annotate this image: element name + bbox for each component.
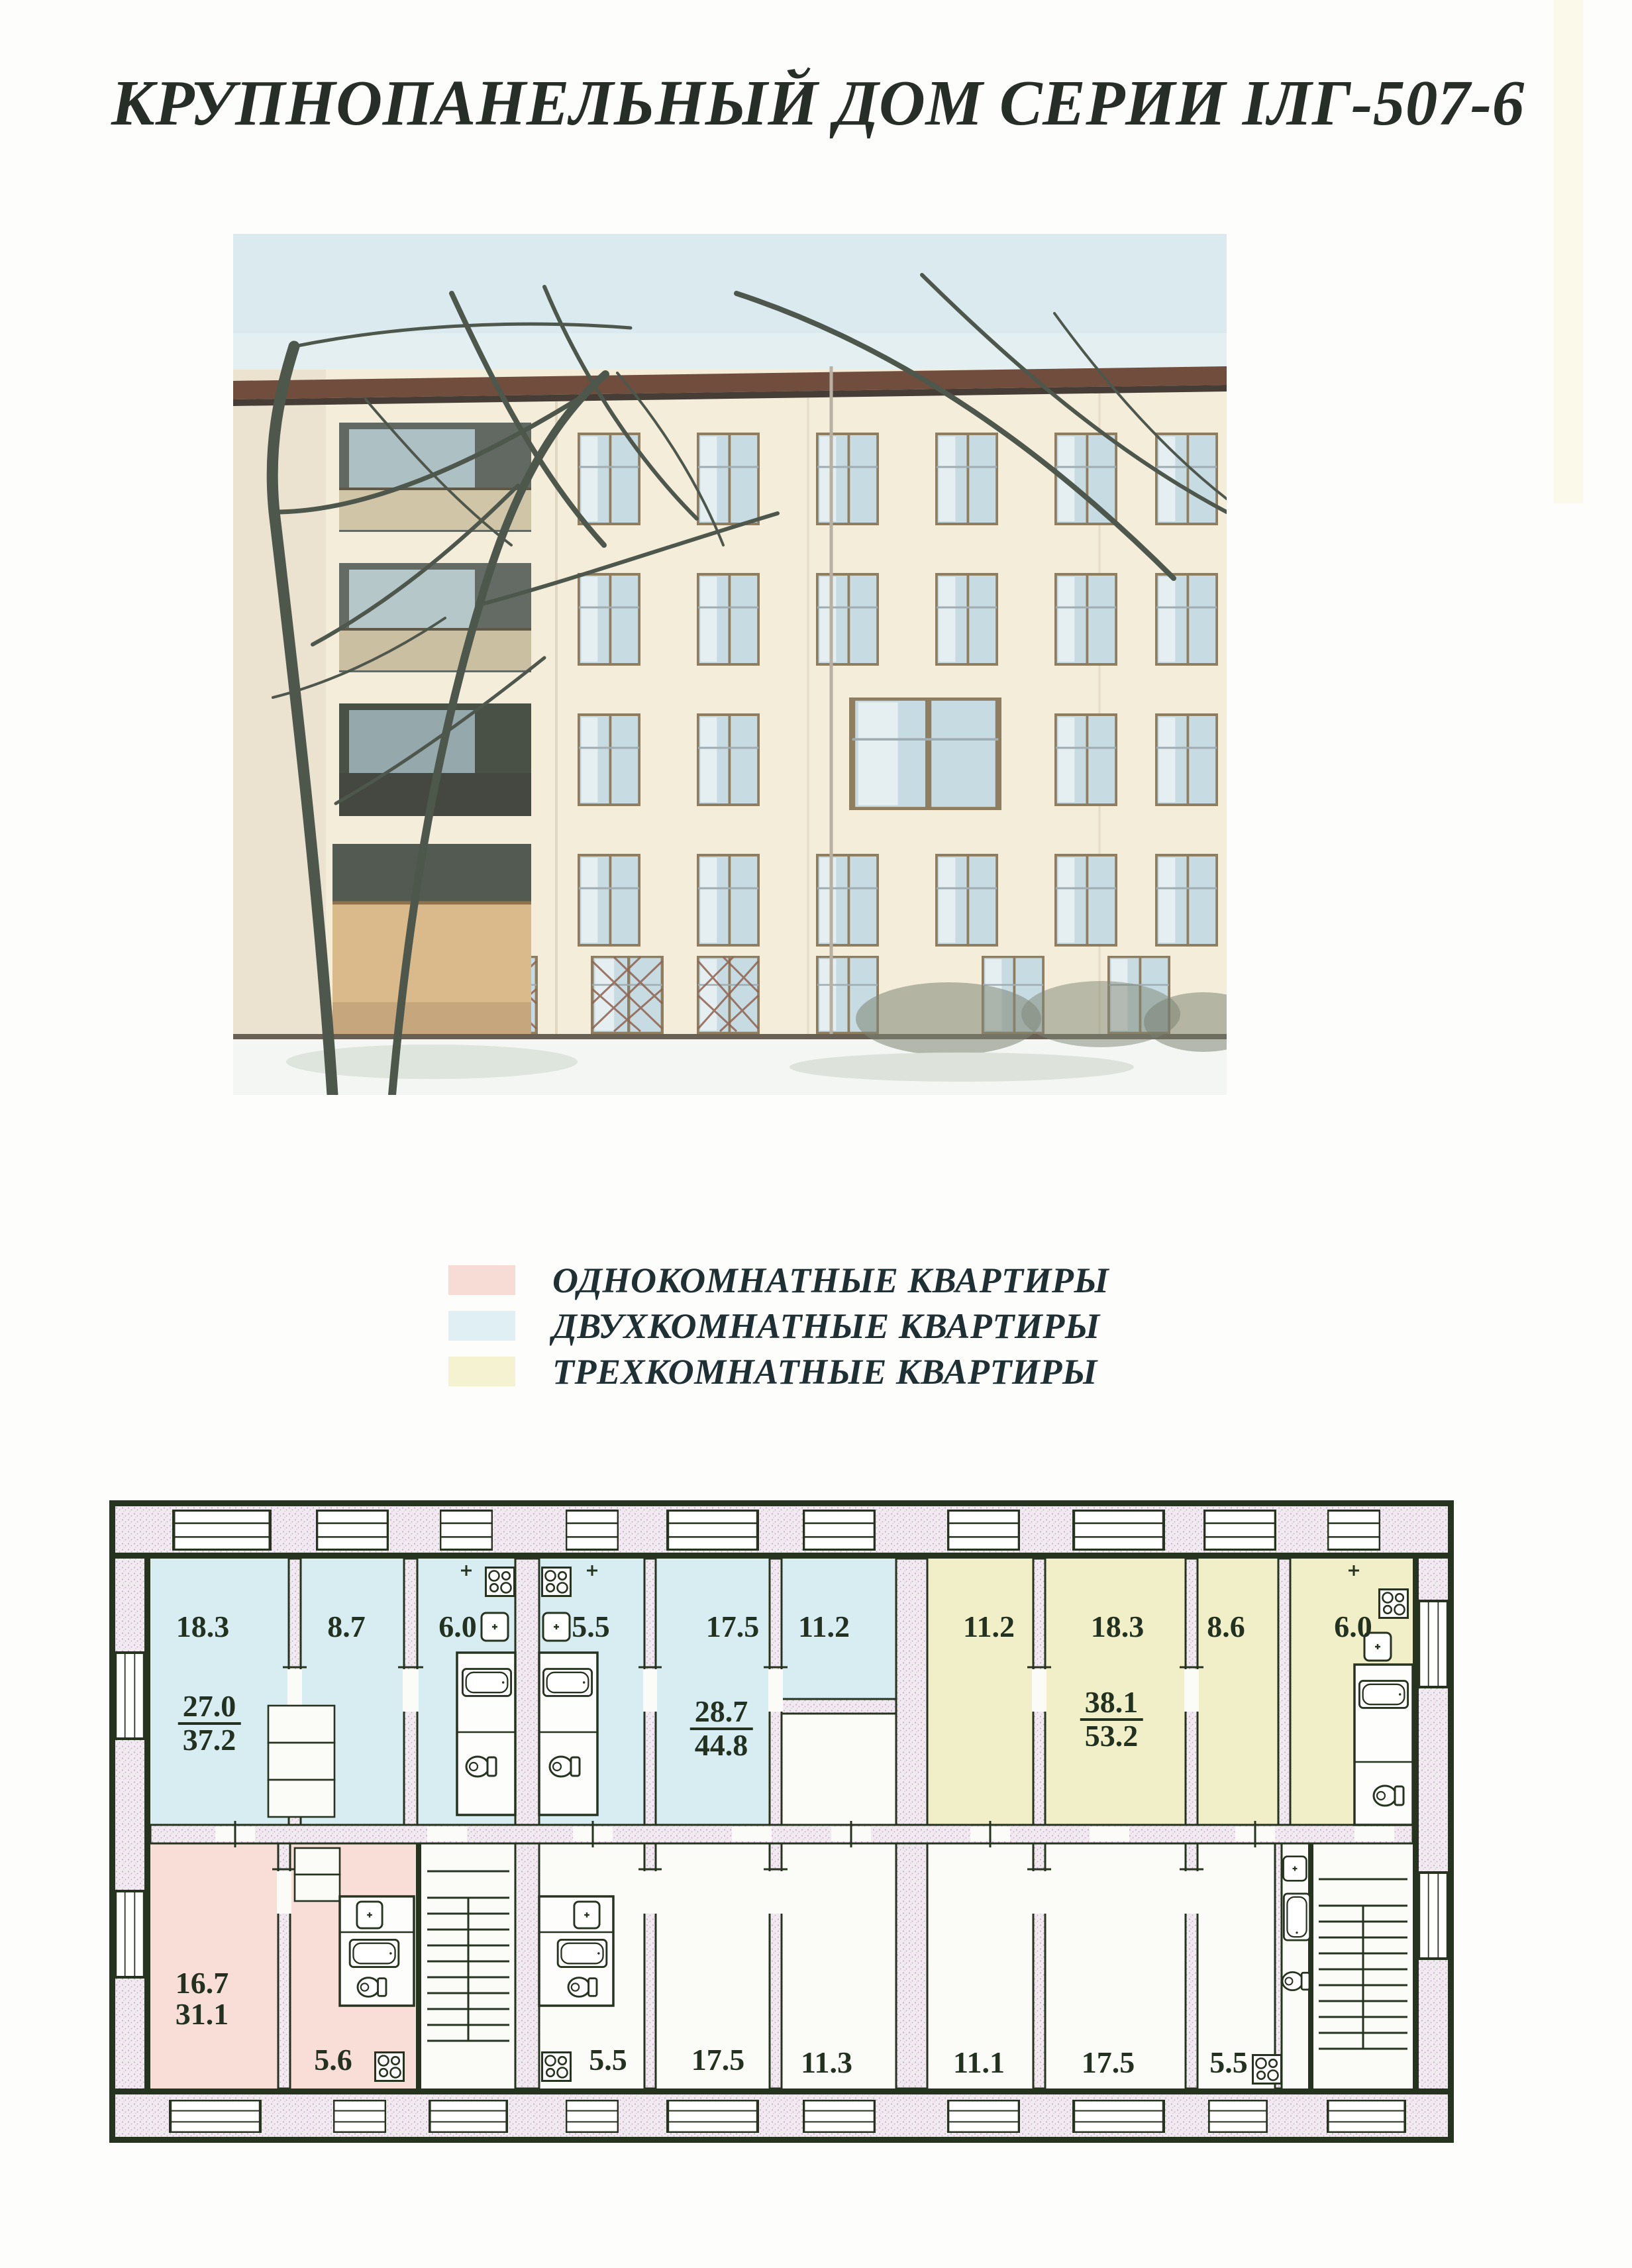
room-area-label: 17.5 — [706, 1612, 760, 1643]
living-area: 38.1 — [1080, 1687, 1143, 1721]
total-area: 31.1 — [176, 1999, 229, 2030]
total-area: 53.2 — [1080, 1721, 1143, 1752]
three-room-color-swatch — [448, 1357, 515, 1386]
living-area: 27.0 — [178, 1691, 241, 1725]
legend-item-two-room: ДВУХКОМНАТНЫЕ КВАРТИРЫ — [448, 1303, 1109, 1349]
one-room-color-swatch — [448, 1265, 515, 1295]
room-area-label: 5.5 — [1209, 2047, 1248, 2079]
scan-artifact-tint — [1554, 0, 1583, 503]
room-area-label: 6.0 — [1334, 1612, 1372, 1643]
stair-right-wall — [1308, 1843, 1313, 2088]
apartment-area-label: 38.1 53.2 — [1080, 1687, 1143, 1752]
room-area-label: 11.2 — [798, 1612, 850, 1643]
building-photo — [233, 234, 1227, 1095]
total-area: 44.8 — [690, 1730, 753, 1761]
legend-label: ОДНОКОМНАТНЫЕ КВАРТИРЫ — [552, 1260, 1109, 1301]
apartment-area-label: 16.7 31.1 — [176, 1968, 229, 2030]
apartment-type-legend: ОДНОКОМНАТНЫЕ КВАРТИРЫ ДВУХКОМНАТНЫЕ КВА… — [448, 1257, 1109, 1394]
apartment-area-label: 27.0 37.2 — [178, 1691, 241, 1756]
living-area: 28.7 — [690, 1696, 753, 1730]
photo-wash — [233, 234, 1227, 1095]
page-title: КРУПНОПАНЕЛЬНЫЙ ДОМ СЕРИИ IЛГ-507-6 — [111, 66, 1529, 140]
living-area: 16.7 — [176, 1968, 229, 1999]
room-area-label: 17.5 — [1082, 2047, 1135, 2079]
room-area-label: 6.0 — [438, 1612, 477, 1643]
legend-item-three-room: ТРЕХКОМНАТНЫЕ КВАРТИРЫ — [448, 1349, 1109, 1394]
room-area-label: 8.6 — [1207, 1612, 1245, 1643]
floor-plan: 18.3 8.7 6.0 5.5 17.5 11.2 11.2 18.3 8.6… — [109, 1500, 1454, 2143]
room-area-label: 8.7 — [327, 1612, 366, 1643]
total-area: 37.2 — [178, 1725, 241, 1756]
floor-plan-drawing — [109, 1500, 1454, 2143]
stair-left-wall — [416, 1843, 421, 2088]
room-area-label: 18.3 — [1091, 1612, 1145, 1643]
legend-label: ДВУХКОМНАТНЫЕ КВАРТИРЫ — [552, 1306, 1100, 1347]
legend-label: ТРЕХКОМНАТНЫЕ КВАРТИРЫ — [552, 1351, 1097, 1392]
room-area-label: 5.5 — [589, 2045, 627, 2076]
room-area-label: 11.2 — [963, 1612, 1015, 1643]
room-area-label: 17.5 — [691, 2045, 745, 2076]
room-area-label: 18.3 — [176, 1612, 230, 1643]
building-photo-drawing — [233, 234, 1227, 1095]
room-area-label: 11.3 — [801, 2047, 852, 2079]
apartment-area-label: 28.7 44.8 — [690, 1696, 753, 1761]
two-room-color-swatch — [448, 1311, 515, 1341]
legend-item-one-room: ОДНОКОМНАТНЫЕ КВАРТИРЫ — [448, 1257, 1109, 1303]
room-area-label: 5.6 — [314, 2045, 352, 2076]
room-area-label: 11.1 — [953, 2047, 1005, 2079]
room-area-label: 5.5 — [572, 1612, 610, 1643]
